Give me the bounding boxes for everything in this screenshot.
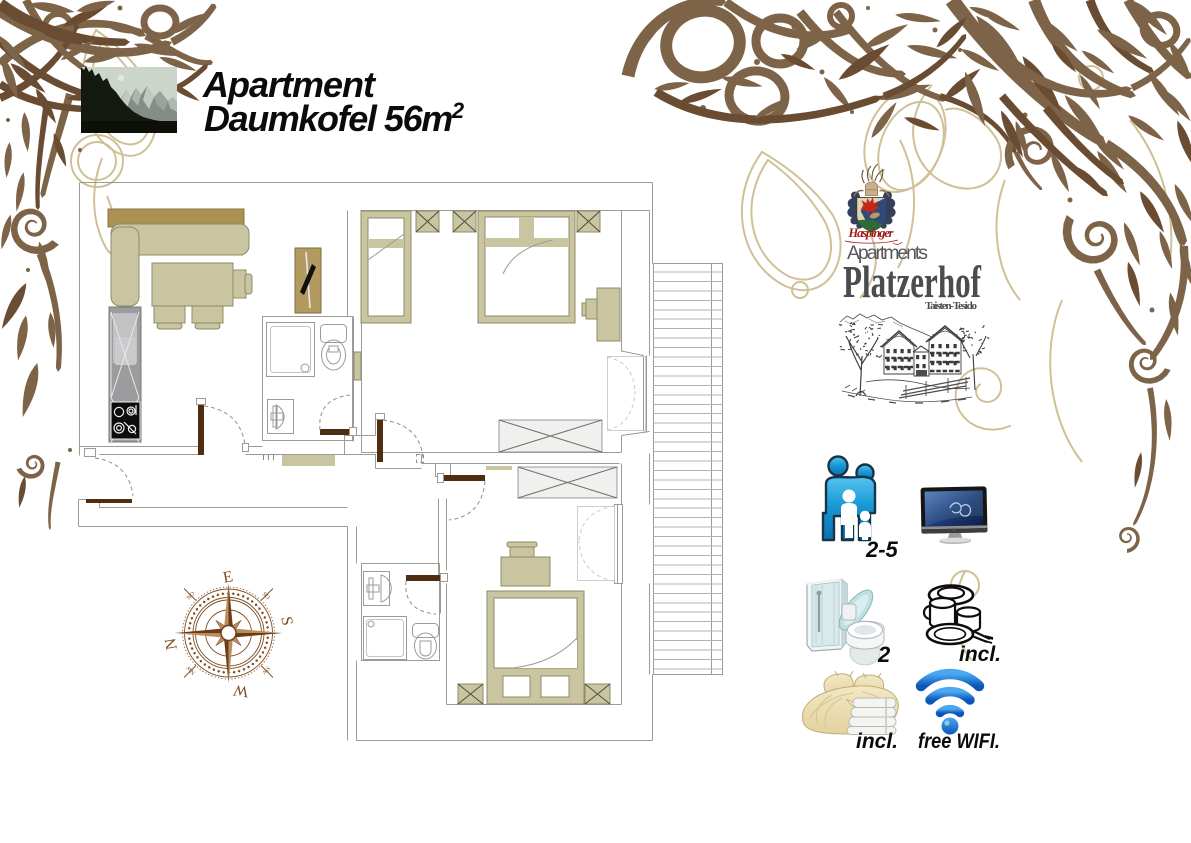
svg-text:W: W [232,681,250,700]
svg-text:free WIFI.: free WIFI. [918,730,1000,753]
svg-text:N: N [162,636,181,651]
svg-text:S: S [277,615,295,627]
svg-text:incl.: incl. [856,730,898,753]
svg-text:Haspinger: Haspinger [848,226,894,240]
svg-text:2: 2 [877,642,891,667]
svg-text:E: E [222,568,235,586]
svg-text:NW: NW [185,664,197,676]
svg-text:2-5: 2-5 [865,537,899,562]
svg-text:Daumkofel 56m2: Daumkofel 56m2 [204,98,465,139]
svg-text:incl.: incl. [959,643,1001,666]
svg-text:SO: SO [261,591,271,601]
svg-text:Taisten-Tesido: Taisten-Tesido [925,300,978,312]
